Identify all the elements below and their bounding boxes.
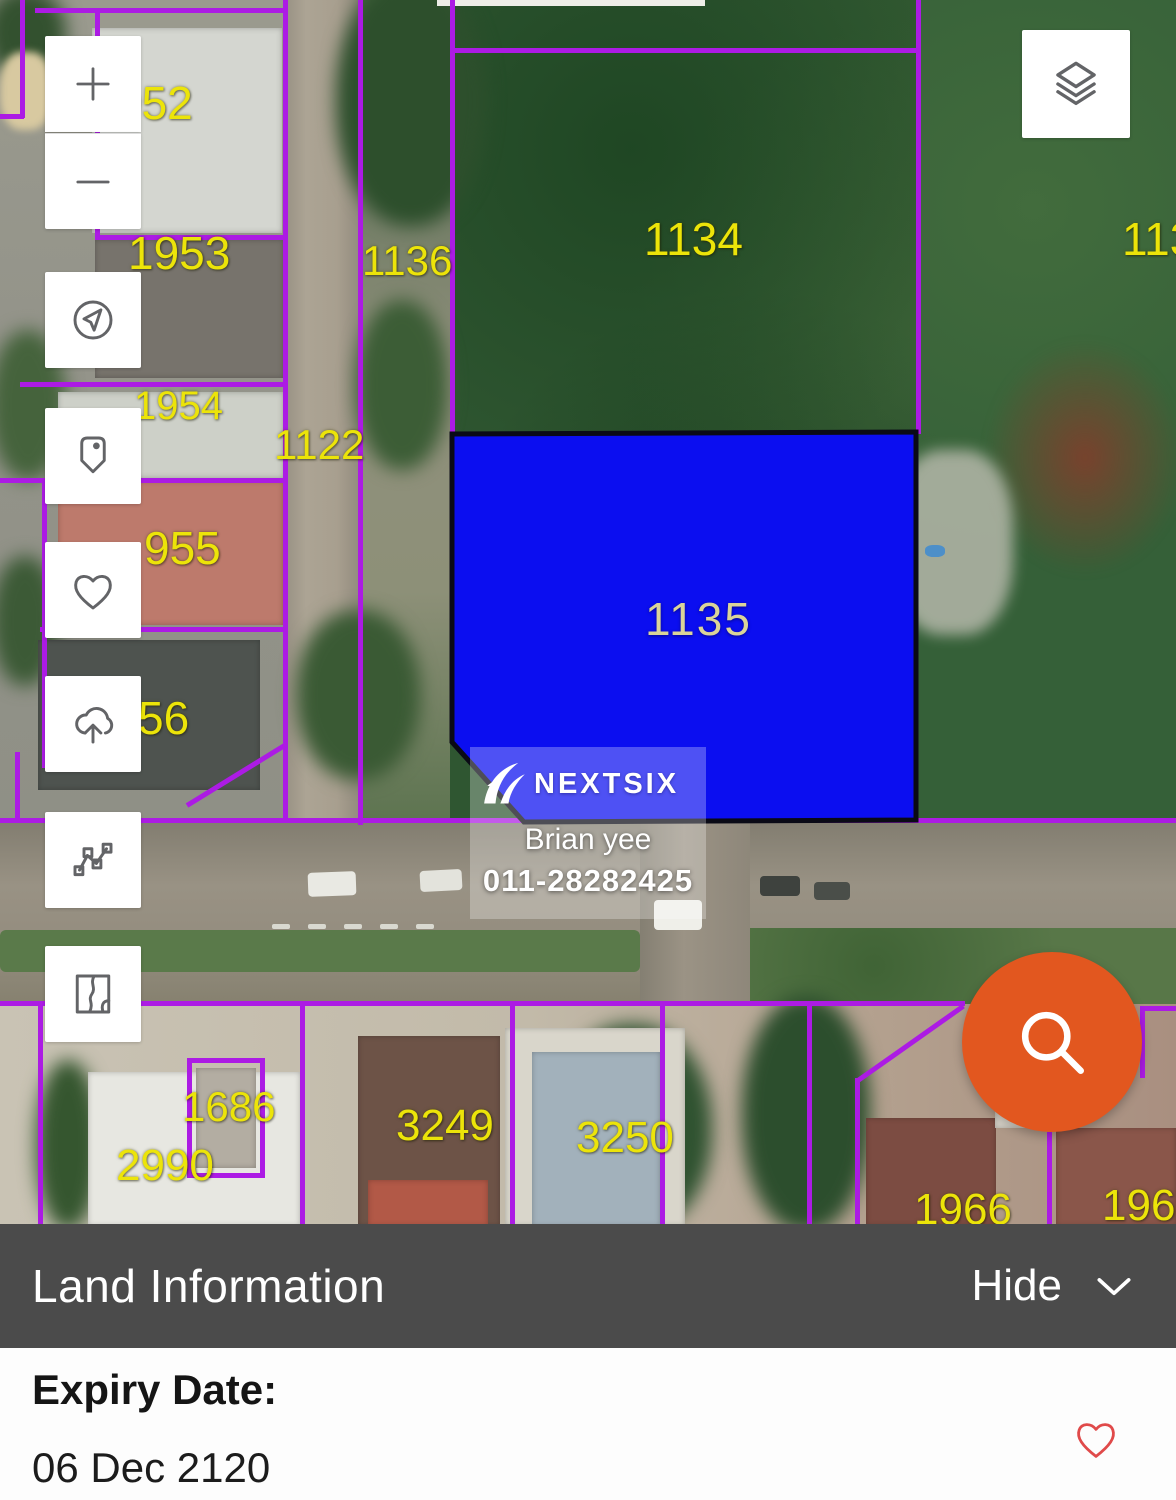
parcel-boundary [855, 1078, 860, 1226]
polyline-icon [66, 833, 120, 887]
parcel-label-1954: 1954 [134, 386, 223, 426]
lane-marking [416, 924, 434, 929]
cloud-upload-icon [66, 697, 120, 751]
parcel-boundary [20, 0, 25, 118]
map-icon [66, 967, 120, 1021]
layers-icon [1045, 53, 1107, 115]
brand-logo-row: NEXTSIX [476, 753, 700, 815]
zoom-out-button[interactable] [45, 133, 141, 229]
land-info-header: Land Information Hide [0, 1224, 1176, 1348]
tree-cluster [356, 300, 448, 470]
locate-button[interactable] [45, 272, 141, 368]
layers-button[interactable] [1022, 30, 1130, 138]
expiry-date-value: 06 Dec 2120 [32, 1444, 270, 1492]
parcel-boundary [450, 48, 920, 53]
car-dark [760, 876, 800, 896]
parcel-boundary [283, 0, 288, 822]
panel-title: Land Information [32, 1259, 385, 1313]
chevron-down-icon [1092, 1271, 1136, 1301]
parcel-label-1953: 1953 [128, 230, 230, 276]
favorite-button[interactable] [45, 542, 141, 638]
parcel-label-113: 113 [1122, 216, 1176, 262]
land-info-body: Expiry Date: 06 Dec 2120 [0, 1348, 1176, 1500]
parcel-label-1135: 1135 [645, 596, 752, 642]
parcel-label-1134: 1134 [644, 216, 743, 262]
car-dark [814, 882, 850, 900]
navigation-icon [66, 293, 120, 347]
red-vegetation [985, 340, 1176, 575]
measure-button[interactable] [45, 812, 141, 908]
parcel-label-955: 955 [144, 525, 221, 571]
parcel-boundary [1140, 1006, 1176, 1011]
parcel-boundary [300, 1003, 305, 1226]
parcel-label-56: 56 [138, 695, 189, 741]
white-road-strip [437, 0, 705, 6]
parcel-boundary [38, 1003, 43, 1226]
brand-name: NEXTSIX [534, 768, 679, 801]
plus-icon [67, 58, 119, 110]
parcel-boundary [916, 0, 921, 434]
agent-name: Brian yee [470, 823, 706, 857]
favorite-heart-icon[interactable] [1070, 1412, 1122, 1464]
search-icon [1006, 996, 1098, 1088]
parcel-boundary [1047, 1132, 1052, 1226]
lane-marking [308, 924, 326, 929]
lane-marking [344, 924, 362, 929]
search-fab[interactable] [962, 952, 1142, 1132]
bush-cluster [742, 996, 870, 1232]
parcel-boundary [35, 8, 285, 13]
cloud-upload-button[interactable] [45, 676, 141, 772]
agent-phone: 011-28282425 [470, 863, 706, 899]
parcel-boundary [0, 114, 24, 119]
minus-icon [67, 156, 119, 208]
app-screen: 9521953113611341131954112295556113516862… [0, 0, 1176, 1500]
heart-icon [66, 563, 120, 617]
zoom-in-button[interactable] [45, 36, 141, 132]
lane-marking [272, 924, 290, 929]
car-white [308, 871, 357, 897]
agent-watermark: NEXTSIX Brian yee 011-28282425 [470, 747, 706, 919]
parcel-boundary [450, 0, 455, 434]
parcel-boundary [807, 1003, 812, 1226]
parcel-label-1136: 1136 [362, 240, 452, 282]
map-type-button[interactable] [45, 946, 141, 1042]
hide-panel-button[interactable]: Hide [972, 1224, 1137, 1348]
parcel-boundary [510, 1003, 515, 1226]
pin-button[interactable] [45, 408, 141, 504]
parcel-label-1122: 1122 [274, 424, 364, 466]
parcel-boundary [358, 0, 363, 825]
parcel-label-1967: 1967 [1102, 1184, 1176, 1228]
hide-label: Hide [972, 1261, 1063, 1311]
parcel-boundary [0, 1001, 965, 1006]
building-3249-roof [368, 1180, 488, 1226]
pin-icon [66, 429, 120, 483]
nextsix-logo-icon [476, 758, 528, 810]
lane-marking [380, 924, 398, 929]
car-white [419, 869, 462, 892]
parcel-label-2990: 2990 [116, 1144, 214, 1188]
parcel-label-3249: 3249 [396, 1104, 494, 1148]
parcel-label-3250: 3250 [576, 1116, 674, 1160]
parcel-boundary [15, 752, 20, 820]
expiry-date-label: Expiry Date: [32, 1366, 277, 1414]
parcel-label-1686: 1686 [182, 1086, 275, 1128]
pool-dot [925, 545, 945, 557]
